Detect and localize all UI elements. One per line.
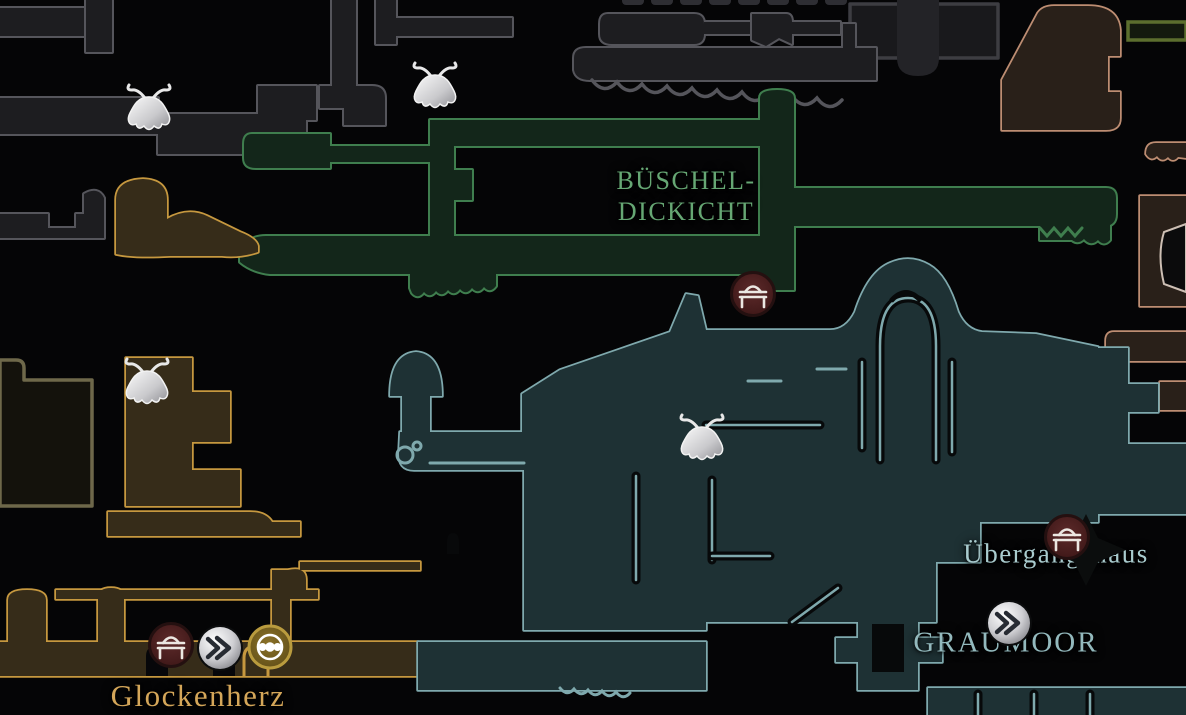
hanging-bell-silhouette — [897, 0, 939, 76]
clipped-label-fragments — [622, 0, 847, 5]
silksong-map-view[interactable]: BÜSCHEL- DICKICHT Übergangshaus GRAUMOOR… — [0, 0, 1186, 715]
region-fields-dim — [0, 360, 92, 506]
thicket-label-line1: BÜSCHEL- — [616, 165, 755, 196]
region-label-thicket: BÜSCHEL- DICKICHT — [616, 165, 755, 227]
thicket-label-line2: DICKICHT — [616, 196, 755, 227]
gray-scalloped-edge — [592, 80, 842, 107]
region-label-bellheart: Glockenherz — [111, 678, 286, 714]
cliffs-room-inner-shape — [1161, 224, 1186, 292]
olive-corridor-stub — [1128, 22, 1186, 40]
